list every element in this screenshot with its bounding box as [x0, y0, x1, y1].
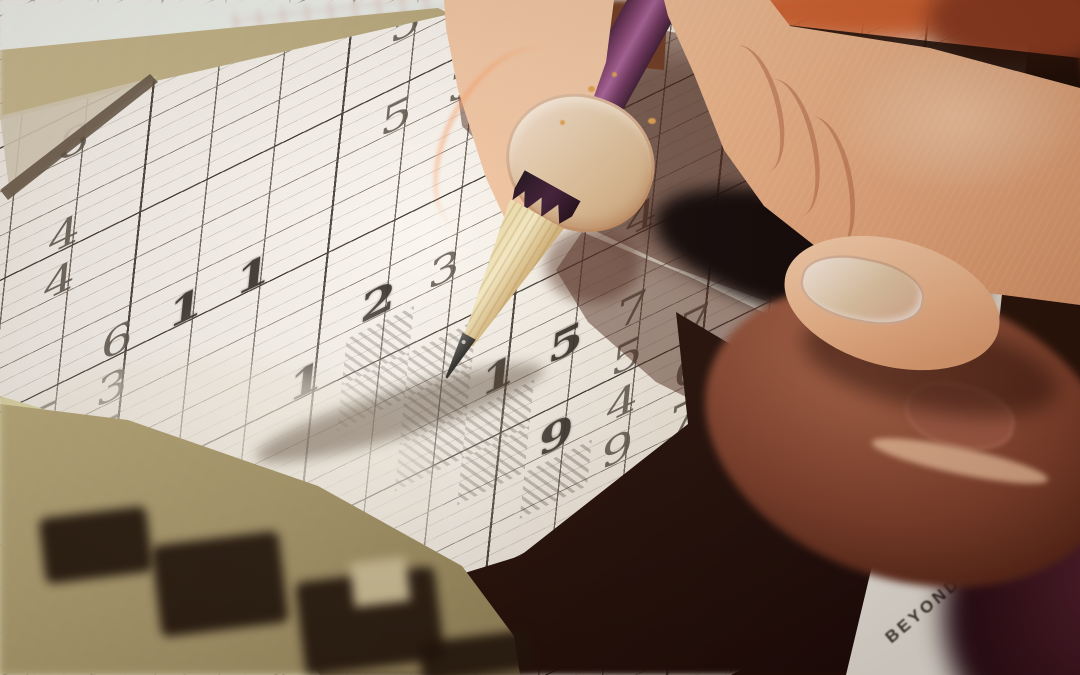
- photo-hand-writing-sudoku: 8545346115535235453145415757394697679938…: [0, 0, 1080, 675]
- vignette: [0, 0, 1080, 675]
